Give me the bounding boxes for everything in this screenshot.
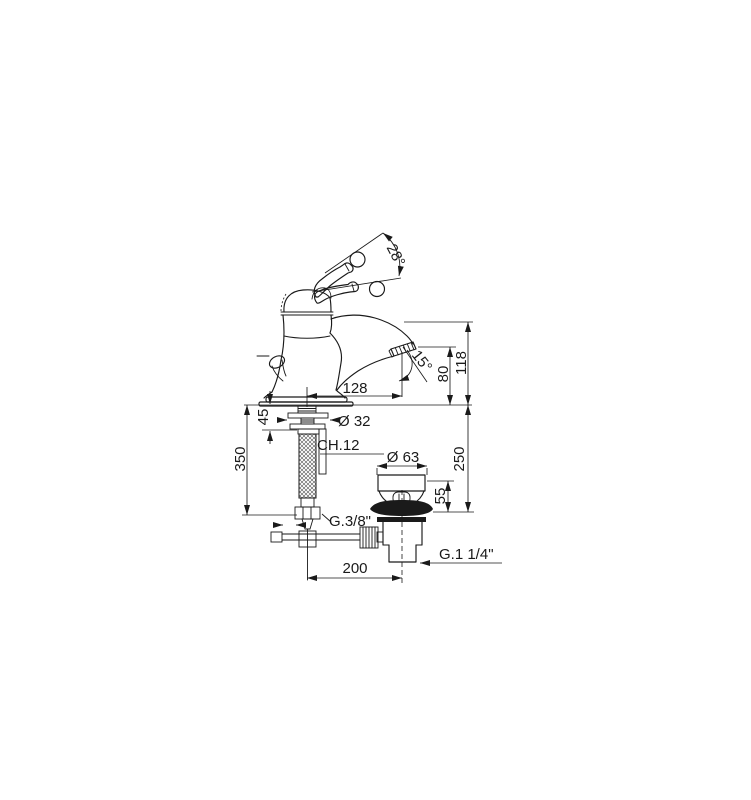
body-seam — [284, 336, 330, 338]
knurled-coupling — [360, 527, 378, 548]
drain-tailpiece — [389, 545, 416, 562]
hose-cone-tip — [302, 519, 313, 529]
drain-body — [377, 522, 422, 545]
horizontal-rod — [282, 534, 360, 540]
dim-flange-diameter — [377, 466, 427, 475]
popup-lift-knob — [257, 353, 287, 381]
drain-assembly — [370, 475, 433, 585]
hose-crimp-collar — [298, 429, 319, 434]
base-plate-upper — [266, 397, 347, 402]
spout-body-junction — [330, 333, 342, 390]
label-wrench-size: CH.12 — [317, 437, 360, 454]
mounting-washer-lower — [290, 424, 325, 429]
lever-handle-lowered — [315, 282, 385, 304]
label-deck-thickness: 45 — [255, 409, 272, 426]
label-waste-thread: G.1 1/4" — [439, 546, 494, 563]
spout-top-edge — [331, 315, 413, 344]
label-outlet-height: 80 — [435, 366, 452, 383]
drain-flange — [378, 475, 425, 491]
label-flange-diameter: Ø 63 — [387, 449, 420, 466]
drain-rubber-gasket — [370, 500, 433, 516]
label-handle-angle: 28° — [383, 241, 409, 269]
label-supply-thread: G.3/8" — [329, 513, 371, 530]
lever-ball-lowered — [370, 282, 385, 297]
label-waste-depth: 250 — [451, 446, 468, 471]
label-hose-length: 350 — [232, 446, 249, 471]
mounting-washer-upper — [288, 413, 328, 418]
cap-dome — [284, 290, 331, 312]
body-right-edge — [330, 315, 332, 333]
technical-drawing-page: 28° 15° 128 80 118 45 Ø 32 CH.12 350 G.3… — [0, 0, 751, 800]
label-spout-reach: 128 — [342, 380, 367, 397]
hose-nut — [295, 507, 320, 519]
label-shank-diameter: Ø 32 — [338, 413, 371, 430]
faucet-body — [257, 288, 416, 406]
label-outlet-angle: 15° — [408, 347, 435, 375]
dimension-labels: 28° 15° 128 80 118 45 Ø 32 CH.12 350 G.3… — [232, 241, 494, 577]
label-waste-top-height: 55 — [432, 488, 449, 505]
label-overall-height: 118 — [453, 351, 470, 375]
hose-braided-section — [299, 434, 316, 498]
rod-end-cap — [271, 532, 282, 542]
label-waste-offset: 200 — [342, 560, 367, 577]
threaded-shank — [298, 406, 316, 424]
drain-seal-washer — [377, 517, 426, 522]
faucet-technical-drawing: 28° 15° 128 80 118 45 Ø 32 CH.12 350 G.3… — [0, 0, 751, 800]
hose-end-collar — [301, 498, 314, 507]
